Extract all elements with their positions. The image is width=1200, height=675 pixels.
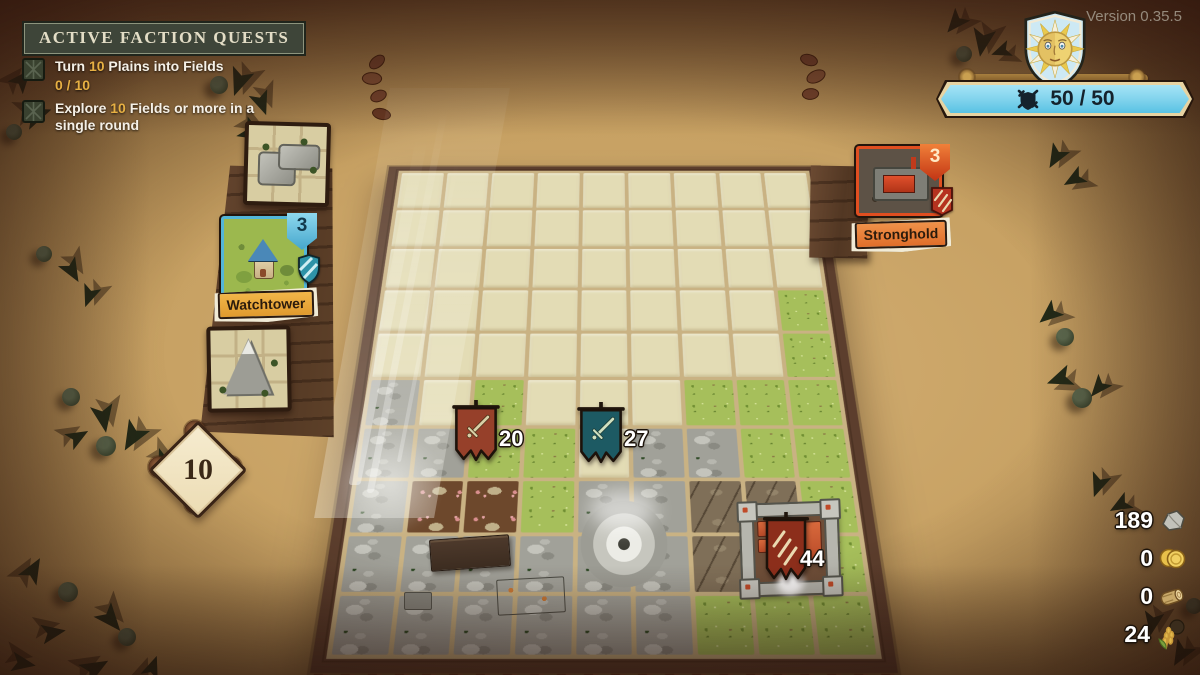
quest-text: Turn 10 Plains into Fields [55,58,283,75]
quest-checkbox-icon [22,58,45,81]
power-banner: 50 / 50 [936,80,1194,118]
village-building [404,592,432,610]
gold-coins-icon [1159,545,1186,572]
resource-list: 189 0 0 [1115,506,1186,649]
watchtower-shield-icon [297,254,321,284]
teal-army-flag-icon[interactable] [577,402,625,466]
wood-log-icon [1159,583,1186,610]
quest-checkbox-icon [22,100,45,123]
quest-panel-title: ACTIVE FACTION QUESTS [22,21,306,56]
wood-count: 0 [1140,583,1153,610]
shield-swords-icon [1015,86,1041,112]
crater [578,500,670,596]
quest-item: Turn 10 Plains into Fields 0 / 10 [22,58,292,93]
stone-count: 189 [1115,507,1153,534]
resource-gold: 0 [1115,544,1186,573]
wheat-icon [1156,619,1186,651]
garrison-count: 44 [800,546,824,572]
deck-counter-value: 10 [166,438,230,502]
gold-count: 0 [1140,545,1153,572]
stronghold-claws-icon [930,186,954,216]
game-screen: 44 20 27 ACTIVE FACT [0,0,1200,675]
resource-wood: 0 [1115,582,1186,611]
stone-icon [1159,507,1186,534]
power-banner-value: 50 / 50 [1050,87,1114,111]
tile-card-rocks[interactable] [243,121,331,207]
village-building [496,576,566,616]
village-building [429,534,511,572]
resource-wheat: 24 [1115,620,1186,649]
deck-counter: 10 [150,422,240,512]
teal-army-count: 27 [624,426,648,452]
resource-stone: 189 [1115,506,1186,535]
wheat-count: 24 [1124,621,1150,648]
red-army-flag-icon[interactable] [452,400,500,464]
tile-card-mountain[interactable] [206,325,291,412]
quest-progress: 0 / 10 [55,77,283,93]
stronghold-card[interactable]: 3 Stronghold [856,146,942,216]
watchtower-card[interactable]: 3 Watchtower [221,216,307,316]
red-army-count: 20 [499,426,523,452]
